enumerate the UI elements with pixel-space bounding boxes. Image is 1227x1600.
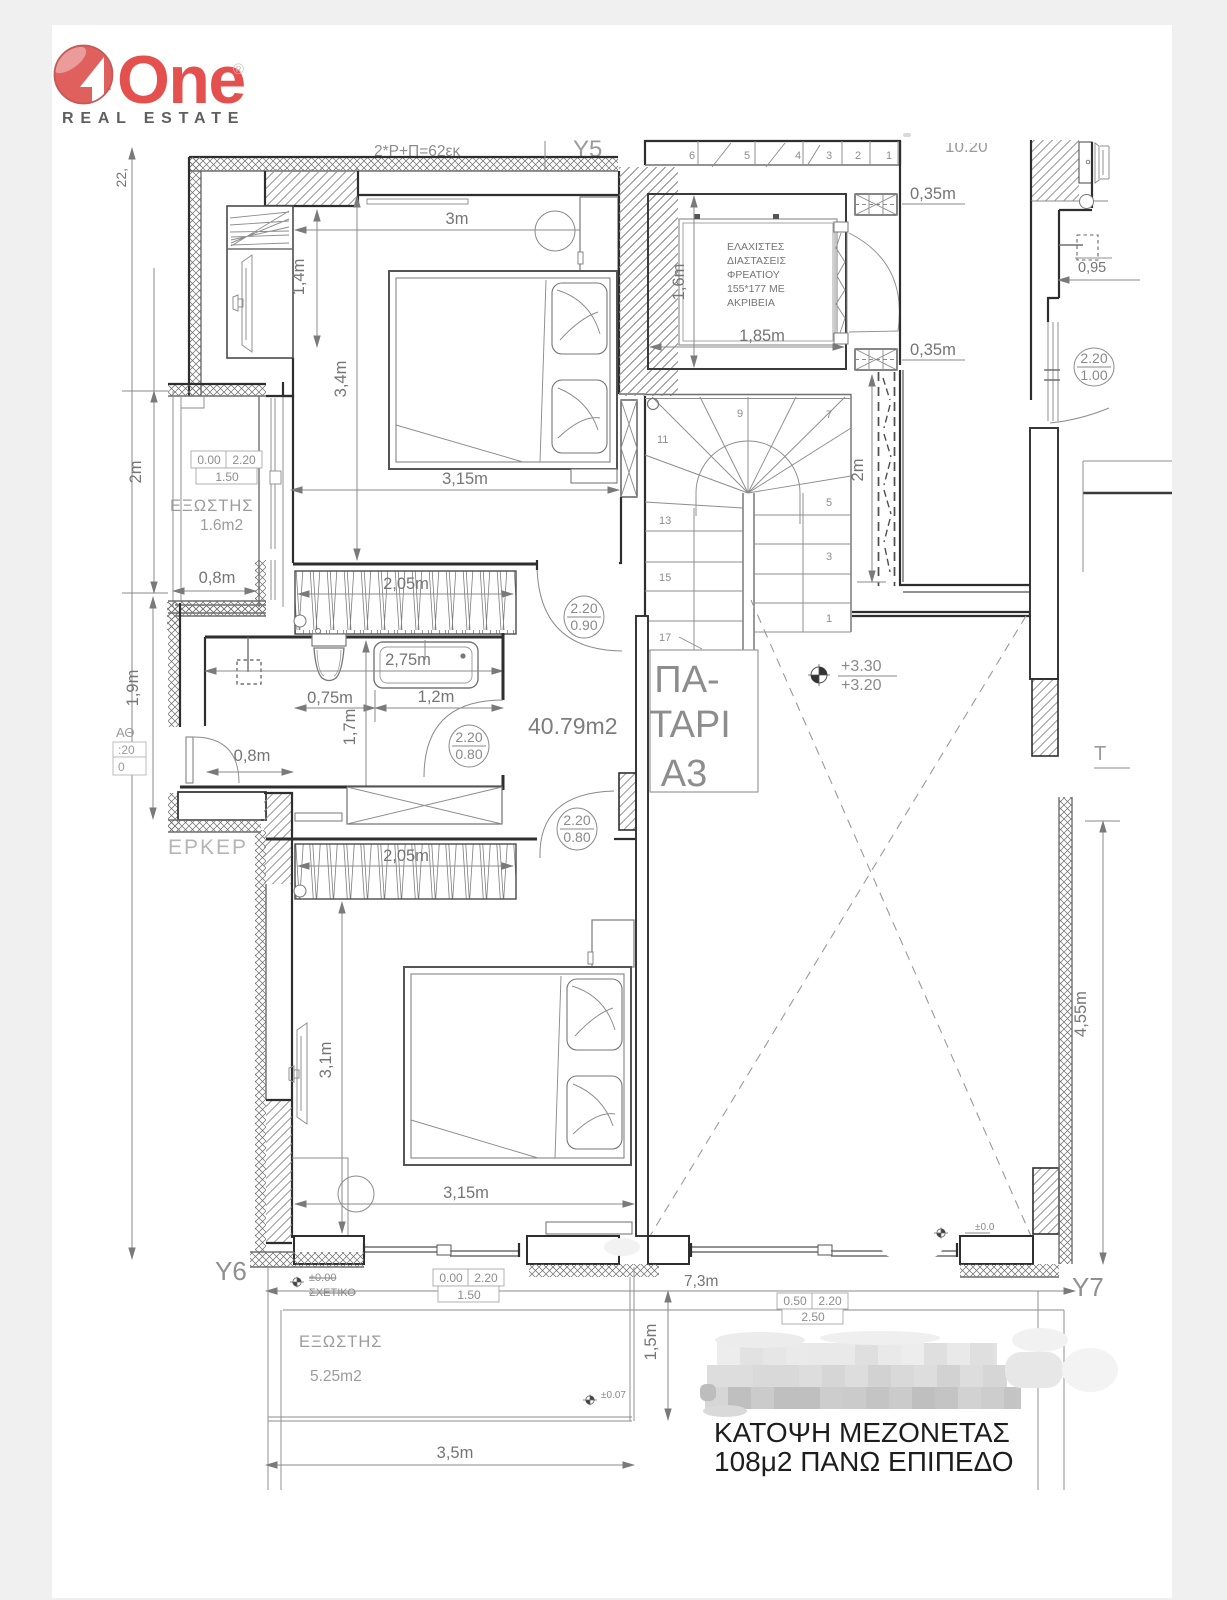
svg-text:9: 9 [737, 408, 743, 420]
svg-text:REAL ESTATE: REAL ESTATE [62, 110, 245, 127]
svg-text:3,1m: 3,1m [317, 1042, 335, 1079]
svg-text:ΕΡΚΕΡ: ΕΡΚΕΡ [168, 836, 248, 859]
svg-text:5: 5 [826, 497, 832, 509]
svg-text:15: 15 [659, 572, 671, 584]
svg-text:4: 4 [795, 150, 801, 162]
svg-text:One: One [117, 42, 245, 118]
svg-text:0: 0 [118, 760, 125, 774]
svg-text:2.20: 2.20 [563, 812, 590, 828]
svg-text:1,85m: 1,85m [739, 327, 785, 345]
svg-text:±0.07: ±0.07 [601, 1390, 626, 1401]
svg-text:2.50: 2.50 [801, 1310, 825, 1324]
svg-text:3: 3 [826, 150, 832, 162]
svg-text:Τ: Τ [1094, 743, 1106, 765]
svg-text:0,95: 0,95 [1078, 260, 1106, 276]
svg-text:ΣΧΕΤΙΚΟ: ΣΧΕΤΙΚΟ [309, 1287, 356, 1299]
svg-text:2.20: 2.20 [232, 453, 256, 467]
svg-text:1.00: 1.00 [1080, 367, 1107, 383]
svg-text:1,2m: 1,2m [418, 688, 455, 706]
svg-text:6: 6 [689, 150, 695, 162]
svg-text:Α3: Α3 [661, 753, 707, 795]
svg-text:±0.00: ±0.00 [309, 1272, 336, 1284]
svg-text:ΦΡΕΑΤΙΟΥ: ΦΡΕΑΤΙΟΥ [727, 269, 780, 281]
svg-text:3,4m: 3,4m [332, 361, 350, 398]
svg-text:Υ6: Υ6 [215, 1256, 247, 1286]
svg-text:22,: 22, [113, 168, 129, 187]
svg-text:2m: 2m [127, 461, 145, 484]
svg-text:®: ® [233, 61, 244, 78]
svg-text:0,8m: 0,8m [234, 747, 271, 765]
svg-text:17: 17 [659, 632, 671, 644]
svg-text:11: 11 [657, 434, 668, 446]
svg-text:±0.0: ±0.0 [975, 1222, 995, 1233]
svg-text:0.80: 0.80 [455, 746, 482, 762]
svg-text:3,5m: 3,5m [437, 1444, 474, 1462]
svg-text:4,55m: 4,55m [1072, 991, 1090, 1037]
svg-text:2.20: 2.20 [474, 1271, 498, 1285]
svg-text:ΕΞΩΣΤΗΣ: ΕΞΩΣΤΗΣ [299, 1333, 382, 1351]
svg-text:ΕΛΑΧΙΣΤΕΣ: ΕΛΑΧΙΣΤΕΣ [727, 241, 785, 253]
svg-text:1,6m: 1,6m [670, 264, 688, 301]
svg-text:2.20: 2.20 [570, 600, 597, 616]
svg-text:+3.20: +3.20 [841, 677, 882, 694]
svg-text:0.90: 0.90 [570, 617, 597, 633]
svg-text:3,15m: 3,15m [443, 1184, 489, 1202]
svg-text:0.80: 0.80 [563, 829, 590, 845]
svg-text:5.25m2: 5.25m2 [310, 1368, 362, 1385]
svg-text:ΚΑΤΟΨΗ ΜΕΖΟΝΕΤΑΣ: ΚΑΤΟΨΗ ΜΕΖΟΝΕΤΑΣ [714, 1417, 1010, 1448]
svg-text:0.50: 0.50 [783, 1294, 807, 1308]
svg-text:ΑΘ: ΑΘ [116, 725, 135, 740]
svg-text:2.20: 2.20 [818, 1294, 842, 1308]
svg-text:3m: 3m [446, 210, 469, 228]
svg-text:2.20: 2.20 [455, 729, 482, 745]
svg-text:0,8m: 0,8m [199, 569, 236, 587]
svg-text:0.00: 0.00 [439, 1271, 463, 1285]
svg-text:ΤΑΡΙ: ΤΑΡΙ [649, 704, 731, 746]
svg-text:0,35m: 0,35m [910, 341, 956, 359]
svg-text:2,05m: 2,05m [383, 847, 429, 865]
svg-text:2.20: 2.20 [1080, 350, 1107, 366]
svg-text:7,3m: 7,3m [684, 1273, 718, 1290]
svg-text:ΕΞΩΣΤΗΣ: ΕΞΩΣΤΗΣ [170, 497, 253, 515]
svg-text:1,4m: 1,4m [290, 259, 308, 296]
svg-text:2,05m: 2,05m [383, 575, 429, 593]
svg-text:3,15m: 3,15m [442, 470, 488, 488]
svg-text:0,75m: 0,75m [307, 689, 353, 707]
svg-text:13: 13 [659, 515, 671, 527]
svg-text:1,7m: 1,7m [341, 709, 359, 746]
svg-text:1: 1 [886, 150, 892, 162]
svg-text:1.50: 1.50 [215, 470, 239, 484]
svg-text:3: 3 [826, 551, 832, 563]
svg-text:1.50: 1.50 [457, 1288, 481, 1302]
svg-text:1: 1 [826, 613, 832, 625]
svg-text:2: 2 [855, 150, 861, 162]
svg-text:ΑΚΡΙΒΕΙΑ: ΑΚΡΙΒΕΙΑ [727, 297, 775, 309]
svg-text:1,5m: 1,5m [642, 1324, 660, 1361]
svg-text:0,35m: 0,35m [910, 185, 956, 203]
svg-text:1.6m2: 1.6m2 [200, 517, 243, 534]
svg-text:7: 7 [826, 409, 832, 421]
svg-text:1,9m: 1,9m [124, 670, 142, 707]
svg-text:40.79m2: 40.79m2 [528, 713, 618, 739]
svg-text:5: 5 [744, 150, 750, 162]
svg-text:155*177 ΜΕ: 155*177 ΜΕ [727, 283, 785, 295]
svg-text::20: :20 [118, 743, 135, 757]
svg-text:0.00: 0.00 [197, 453, 221, 467]
svg-text:+3.30: +3.30 [841, 658, 882, 675]
svg-text:Υ7: Υ7 [1072, 1272, 1104, 1302]
svg-text:2,75m: 2,75m [385, 651, 431, 669]
svg-text:ΠΑ-: ΠΑ- [654, 659, 719, 701]
svg-text:ΔΙΑΣΤΑΣΕΙΣ: ΔΙΑΣΤΑΣΕΙΣ [727, 255, 786, 267]
svg-text:108μ2 ΠΑΝΩ ΕΠΙΠΕΔΟ: 108μ2 ΠΑΝΩ ΕΠΙΠΕΔΟ [714, 1446, 1014, 1477]
